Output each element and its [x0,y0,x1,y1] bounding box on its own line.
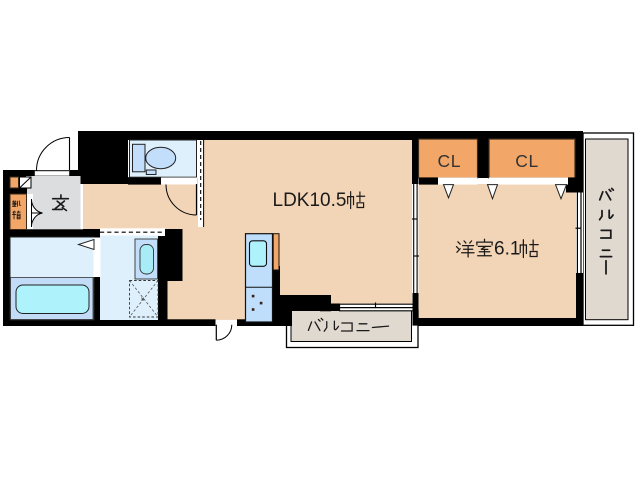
svg-text:×: × [141,297,145,304]
svg-text:LDK10.5: LDK10.5 [273,190,347,211]
svg-text:6.1: 6.1 [494,239,520,260]
svg-text:CL: CL [515,151,539,171]
svg-text:CL: CL [438,151,462,171]
